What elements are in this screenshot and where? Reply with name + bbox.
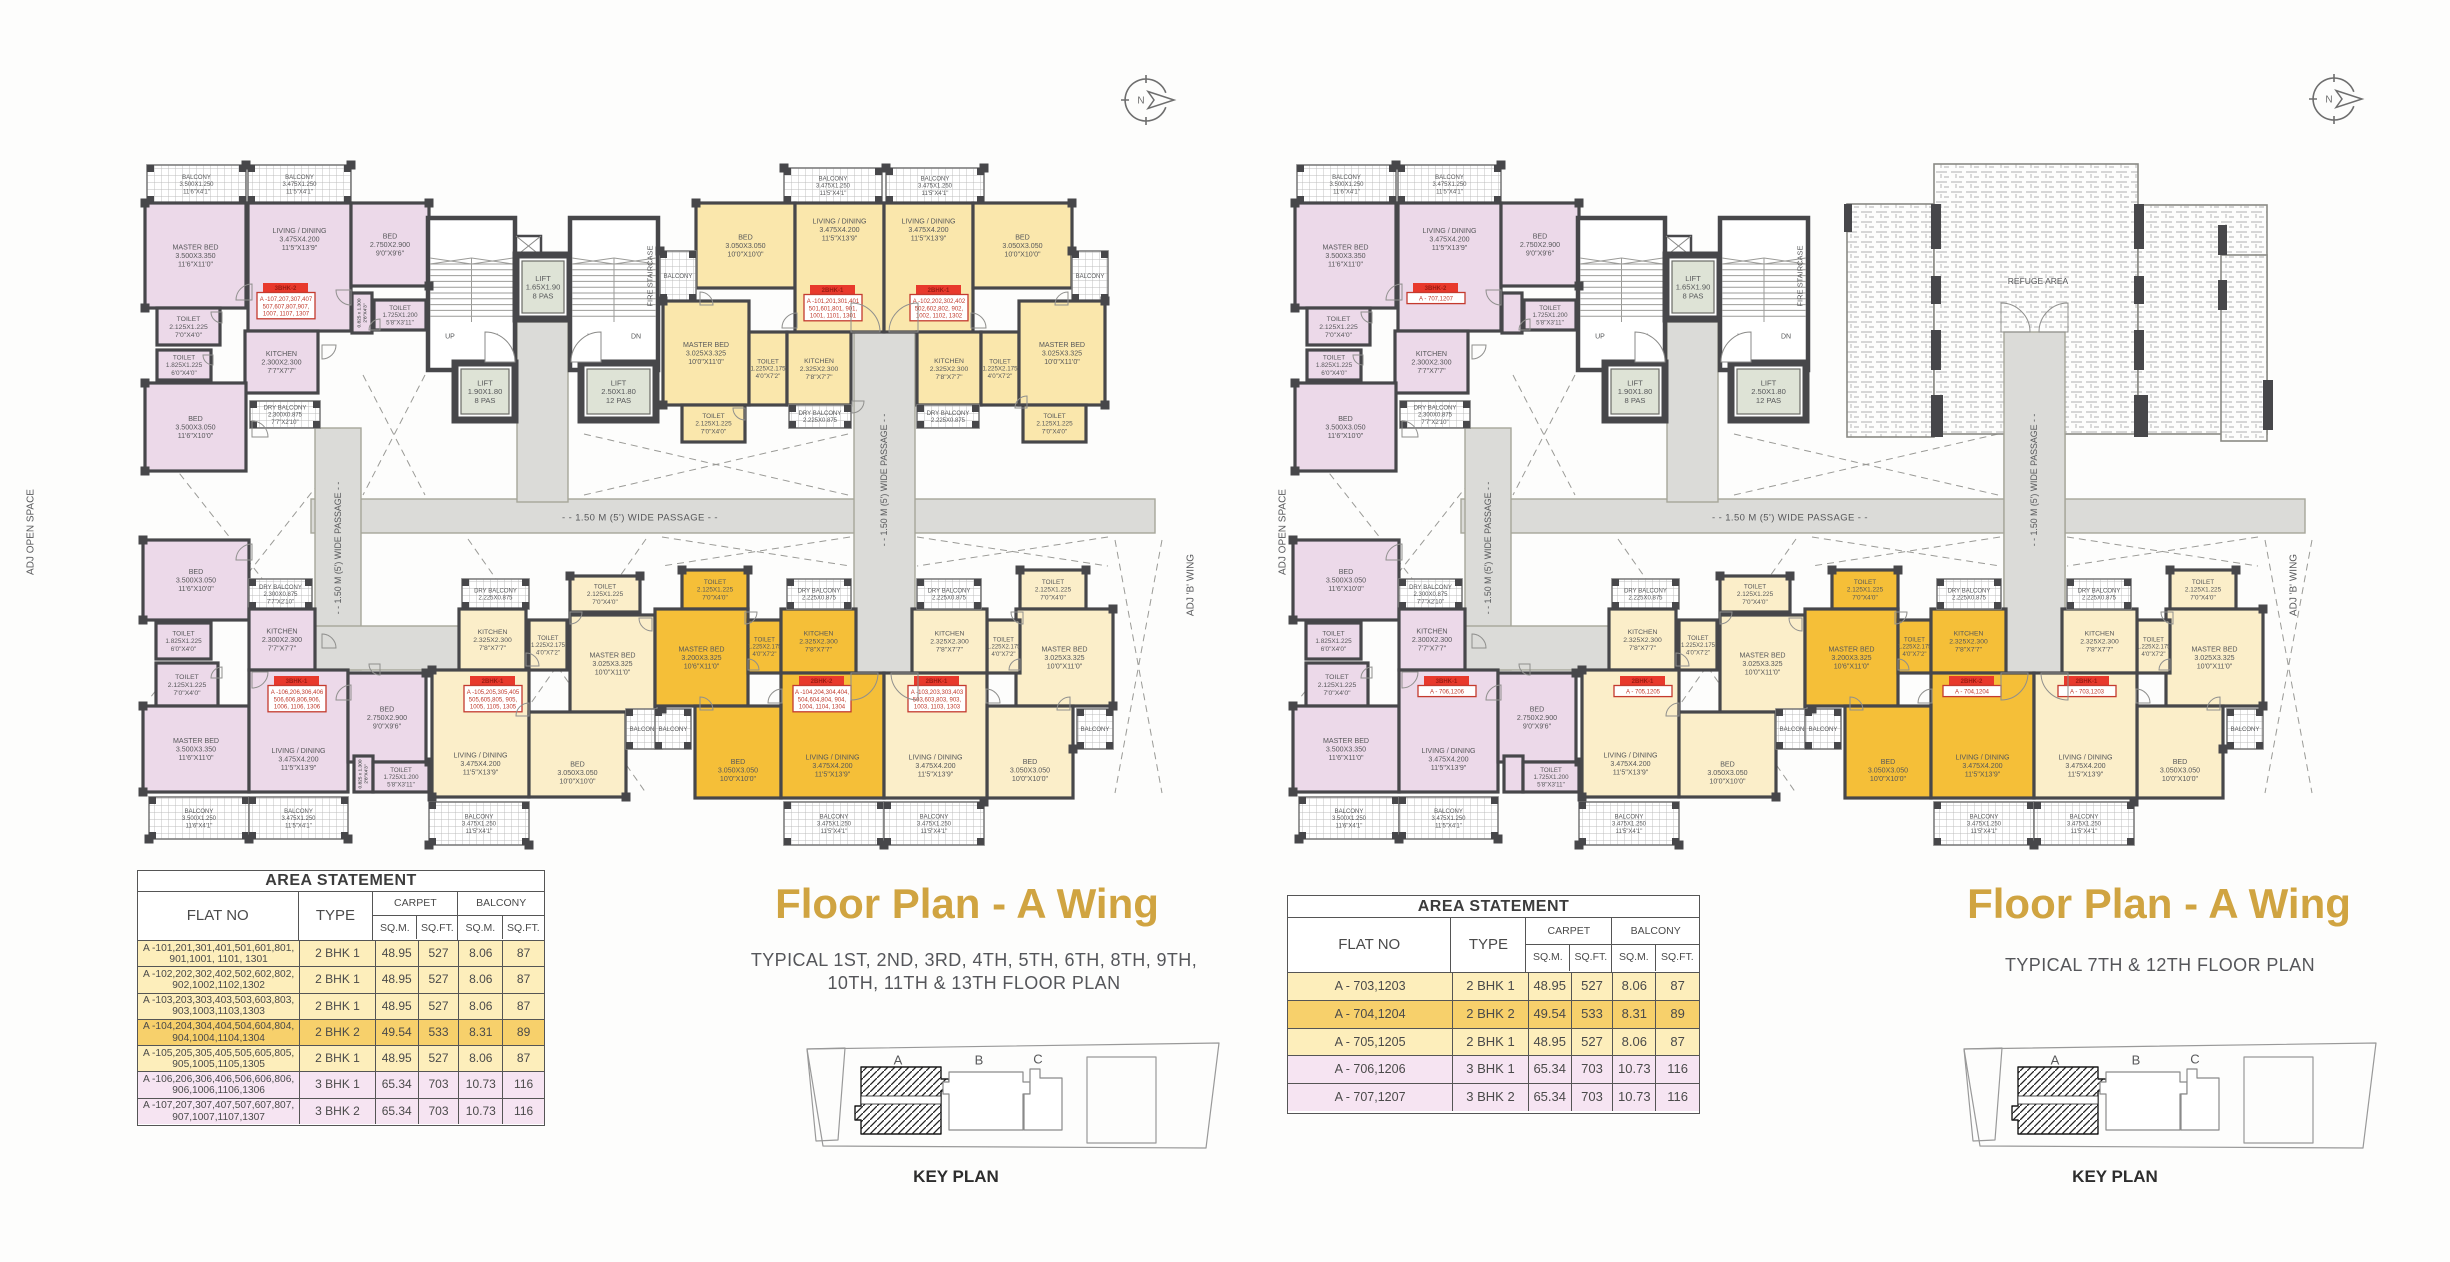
svg-text:2BHK-1: 2BHK-1 bbox=[928, 288, 950, 294]
svg-text:BALCONY3.475X1.25011'5"X4'1": BALCONY3.475X1.25011'5"X4'1" bbox=[918, 176, 953, 196]
svg-text:DRY BALCONY2.225X0.875: DRY BALCONY2.225X0.875 bbox=[474, 589, 517, 602]
svg-text:- - 1.50 M (5') WIDE PASSAGE -: - - 1.50 M (5') WIDE PASSAGE - - bbox=[333, 482, 343, 615]
svg-text:DRY BALCONY2.225X0.875: DRY BALCONY2.225X0.875 bbox=[799, 411, 842, 424]
svg-text:KEY PLAN: KEY PLAN bbox=[2072, 1167, 2158, 1186]
svg-text:C: C bbox=[2190, 1052, 2199, 1067]
svg-text:ADJ 'B' WING: ADJ 'B' WING bbox=[2289, 554, 2300, 616]
svg-text:BALCONY3.475X1.25011'5"X4'1": BALCONY3.475X1.25011'5"X4'1" bbox=[281, 809, 316, 829]
svg-text:N: N bbox=[2325, 95, 2332, 106]
svg-text:2BHK-1: 2BHK-1 bbox=[822, 288, 844, 294]
svg-text:BALCONY3.500X1.25011'6"X4'1": BALCONY3.500X1.25011'6"X4'1" bbox=[1329, 175, 1364, 195]
svg-text:3BHK-2: 3BHK-2 bbox=[1425, 286, 1447, 292]
svg-text:BALCONY3.500X1.25011'6"X4'1": BALCONY3.500X1.25011'6"X4'1" bbox=[179, 175, 214, 195]
svg-text:MASTER BED3.025X3.32510'0"X11': MASTER BED3.025X3.32510'0"X11'0" bbox=[1041, 646, 1087, 671]
svg-text:MASTER BED3.500X3.35011'6"X11': MASTER BED3.500X3.35011'6"X11'0" bbox=[1323, 737, 1369, 762]
svg-text:DRY BALCONY2.225X0.875: DRY BALCONY2.225X0.875 bbox=[2078, 589, 2121, 602]
svg-text:DN: DN bbox=[1781, 333, 1791, 340]
svg-text:REFUGE AREA: REFUGE AREA bbox=[2008, 276, 2069, 286]
svg-text:B: B bbox=[975, 1053, 984, 1068]
svg-text:MASTER BED3.500X3.35011'6"X11': MASTER BED3.500X3.35011'6"X11'0" bbox=[1322, 244, 1368, 269]
svg-text:MASTER BED3.025X3.32510'0"X11': MASTER BED3.025X3.32510'0"X11'0" bbox=[683, 341, 729, 366]
svg-text:- - 1.50 M (5') WIDE PASSAGE -: - - 1.50 M (5') WIDE PASSAGE - - bbox=[1712, 512, 1868, 523]
svg-text:MASTER BED3.025X3.32510'0"X11': MASTER BED3.025X3.32510'0"X11'0" bbox=[589, 652, 635, 677]
svg-text:KITCHEN2.300X2.3007'7"X7'7": KITCHEN2.300X2.3007'7"X7'7" bbox=[1412, 628, 1452, 653]
svg-text:DRY BALCONY2.225X0.875: DRY BALCONY2.225X0.875 bbox=[1624, 589, 1667, 602]
svg-text:- - 1.50 M (5') WIDE PASSAGE -: - - 1.50 M (5') WIDE PASSAGE - - bbox=[2029, 414, 2039, 547]
svg-text:MASTER BED3.200X3.32510'6"X11': MASTER BED3.200X3.32510'6"X11'0" bbox=[678, 646, 724, 671]
svg-text:KITCHEN2.300X2.3007'7"X7'7": KITCHEN2.300X2.3007'7"X7'7" bbox=[262, 628, 302, 653]
svg-text:BALCONY: BALCONY bbox=[630, 727, 659, 733]
svg-text:A -104,204,304,404,504,604,804: A -104,204,304,404,504,604,804, 904,1004… bbox=[795, 690, 849, 710]
svg-text:ADJ OPEN SPACE: ADJ OPEN SPACE bbox=[1278, 489, 1289, 575]
svg-text:A -103,203,303,403503,603,803,: A -103,203,303,403503,603,803, 903,1003,… bbox=[911, 690, 964, 710]
svg-text:DRY BALCONY2.225X0.875: DRY BALCONY2.225X0.875 bbox=[927, 411, 970, 424]
svg-text:UP: UP bbox=[1595, 333, 1605, 340]
svg-text:BALCONY3.475X1.25011'5"X4'1": BALCONY3.475X1.25011'5"X4'1" bbox=[1612, 814, 1647, 834]
svg-text:BALCONY3.475X1.25011'5"X4'1": BALCONY3.475X1.25011'5"X4'1" bbox=[2067, 814, 2102, 834]
svg-text:MASTER BED3.025X3.32510'0"X11': MASTER BED3.025X3.32510'0"X11'0" bbox=[1739, 652, 1785, 677]
svg-text:BALCONY3.475X1.25011'5"X4'1": BALCONY3.475X1.25011'5"X4'1" bbox=[917, 814, 952, 834]
svg-text:BALCONY: BALCONY bbox=[1809, 727, 1838, 733]
svg-text:A: A bbox=[894, 1053, 903, 1068]
svg-text:3BHK-2: 3BHK-2 bbox=[275, 286, 297, 292]
svg-text:2BHK-1: 2BHK-1 bbox=[1632, 679, 1654, 685]
svg-text:UP: UP bbox=[445, 333, 455, 340]
svg-text:DRY BALCONY2.225X0.875: DRY BALCONY2.225X0.875 bbox=[1948, 589, 1991, 602]
svg-text:2BHK-1: 2BHK-1 bbox=[926, 679, 948, 685]
svg-text:A: A bbox=[2051, 1053, 2060, 1068]
svg-text:BALCONY3.475X1.25011'5"X4'1": BALCONY3.475X1.25011'5"X4'1" bbox=[282, 175, 317, 195]
svg-text:MASTER BED3.025X3.32510'0"X11': MASTER BED3.025X3.32510'0"X11'0" bbox=[2191, 646, 2237, 671]
svg-text:A -102,202,302,402502,602,802,: A -102,202,302,402502,602,802, 902,1002,… bbox=[913, 299, 966, 319]
svg-text:N: N bbox=[1137, 96, 1144, 107]
svg-text:BALCONY3.475X1.25011'5"X4'1": BALCONY3.475X1.25011'5"X4'1" bbox=[1967, 814, 2002, 834]
svg-text:3BHK-1: 3BHK-1 bbox=[286, 679, 308, 685]
svg-text:- - 1.50 M (5') WIDE PASSAGE -: - - 1.50 M (5') WIDE PASSAGE - - bbox=[879, 414, 889, 547]
svg-text:BALCONY: BALCONY bbox=[659, 727, 688, 733]
svg-text:MASTER BED3.500X3.35011'6"X11': MASTER BED3.500X3.35011'6"X11'0" bbox=[172, 244, 218, 269]
svg-text:A -105,205,305,405505,605,805,: A -105,205,305,405505,605,805, 905,1005,… bbox=[467, 690, 520, 710]
svg-text:MASTER BED3.500X3.35011'6"X11': MASTER BED3.500X3.35011'6"X11'0" bbox=[173, 737, 219, 762]
svg-text:BALCONY3.500X1.25011'6"X4'1": BALCONY3.500X1.25011'6"X4'1" bbox=[1332, 809, 1367, 829]
svg-text:ADJ OPEN SPACE: ADJ OPEN SPACE bbox=[26, 489, 37, 575]
svg-text:BALCONY: BALCONY bbox=[1076, 274, 1105, 280]
svg-text:2BHK-2: 2BHK-2 bbox=[811, 679, 833, 685]
svg-text:BALCONY3.500X1.25011'6"X4'1": BALCONY3.500X1.25011'6"X4'1" bbox=[182, 809, 217, 829]
svg-text:2BHK-2: 2BHK-2 bbox=[1961, 679, 1983, 685]
svg-text:MASTER BED3.025X3.32510'0"X11': MASTER BED3.025X3.32510'0"X11'0" bbox=[1039, 341, 1085, 366]
svg-text:DRY BALCONY2.225X0.875: DRY BALCONY2.225X0.875 bbox=[798, 589, 841, 602]
svg-text:KEY PLAN: KEY PLAN bbox=[913, 1167, 999, 1186]
svg-text:DN: DN bbox=[631, 333, 641, 340]
svg-text:ADJ 'B' WING: ADJ 'B' WING bbox=[1186, 554, 1197, 616]
svg-text:A -106,206,306,406506,606,806,: A -106,206,306,406506,606,806,906,1006, … bbox=[271, 690, 324, 710]
svg-text:FIRE STAIRCASE: FIRE STAIRCASE bbox=[646, 245, 655, 306]
svg-text:BALCONY: BALCONY bbox=[1780, 727, 1809, 733]
svg-text:2BHK-1: 2BHK-1 bbox=[2076, 679, 2098, 685]
svg-text:- - 1.50 M (5') WIDE PASSAGE -: - - 1.50 M (5') WIDE PASSAGE - - bbox=[1483, 482, 1493, 615]
svg-text:A - 704,1204: A - 704,1204 bbox=[1955, 690, 1990, 696]
svg-text:A - 706,1206: A - 706,1206 bbox=[1430, 690, 1465, 696]
svg-text:A -101,201,301,401501,601,801,: A -101,201,301,401501,601,801, 901,1001,… bbox=[807, 299, 860, 319]
svg-text:BALCONY3.475X1.25011'5"X4'1": BALCONY3.475X1.25011'5"X4'1" bbox=[1432, 175, 1467, 195]
svg-text:3BHK-1: 3BHK-1 bbox=[1436, 679, 1458, 685]
svg-text:DRY BALCONY2.225X0.875: DRY BALCONY2.225X0.875 bbox=[928, 589, 971, 602]
svg-text:BALCONY3.475X1.25011'5"X4'1": BALCONY3.475X1.25011'5"X4'1" bbox=[462, 814, 497, 834]
svg-text:BALCONY: BALCONY bbox=[664, 274, 693, 280]
svg-text:A - 705,1205: A - 705,1205 bbox=[1626, 690, 1661, 696]
svg-text:BALCONY: BALCONY bbox=[1081, 727, 1110, 733]
svg-text:BALCONY3.475X1.25011'5"X4'1": BALCONY3.475X1.25011'5"X4'1" bbox=[816, 176, 851, 196]
svg-text:2BHK-1: 2BHK-1 bbox=[482, 679, 504, 685]
svg-text:FIRE STAIRCASE: FIRE STAIRCASE bbox=[1796, 245, 1805, 306]
svg-text:- - 1.50 M (5') WIDE PASSAGE -: - - 1.50 M (5') WIDE PASSAGE - - bbox=[562, 512, 718, 523]
svg-text:BALCONY3.475X1.25011'5"X4'1": BALCONY3.475X1.25011'5"X4'1" bbox=[817, 814, 852, 834]
svg-text:B: B bbox=[2132, 1053, 2141, 1068]
svg-text:A - 707,1207: A - 707,1207 bbox=[1419, 297, 1454, 303]
svg-text:KITCHEN2.300X2.3007'7"X7'7": KITCHEN2.300X2.3007'7"X7'7" bbox=[261, 350, 301, 375]
svg-text:KITCHEN2.300X2.3007'7"X7'7": KITCHEN2.300X2.3007'7"X7'7" bbox=[1411, 350, 1451, 375]
svg-text:BALCONY: BALCONY bbox=[2231, 727, 2260, 733]
svg-text:C: C bbox=[1033, 1052, 1042, 1067]
svg-text:MASTER BED3.200X3.32510'6"X11': MASTER BED3.200X3.32510'6"X11'0" bbox=[1828, 646, 1874, 671]
svg-text:A -107,207,307,407507,607,807,: A -107,207,307,407507,607,807,907,1007, … bbox=[260, 297, 313, 317]
svg-text:BALCONY3.475X1.25011'5"X4'1": BALCONY3.475X1.25011'5"X4'1" bbox=[1431, 809, 1466, 829]
svg-text:A - 703,1203: A - 703,1203 bbox=[2070, 690, 2105, 696]
